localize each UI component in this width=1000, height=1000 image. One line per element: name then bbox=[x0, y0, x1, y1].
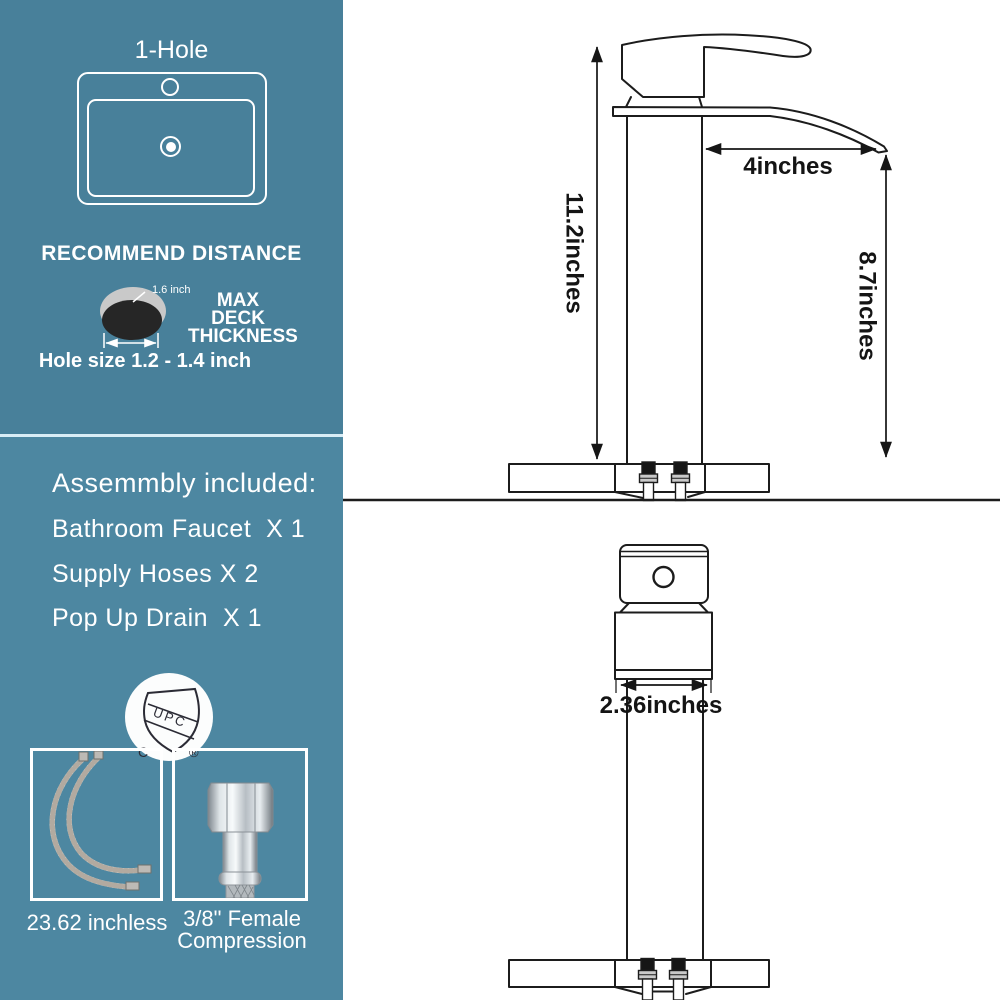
faucet-front-view bbox=[509, 545, 769, 994]
dim-overall-height-label: 11.2inches bbox=[561, 192, 588, 313]
faucet-spec-sheet: 1-Hole RECOMMEND DISTANCE 1.6 inch MAX D… bbox=[0, 0, 1000, 1000]
waterfall-spout bbox=[770, 108, 887, 153]
supply-connections-top bbox=[640, 462, 690, 501]
dim-spout-reach-label: 4inches bbox=[743, 153, 832, 180]
handle-cap bbox=[620, 545, 708, 603]
dim-spout-height-label: 8.7inches bbox=[854, 251, 881, 360]
handle-button bbox=[654, 567, 674, 587]
faucet-technical-drawing: 11.2inches 8.7inches 4inches 2.36inches bbox=[0, 0, 1000, 1000]
handle-lever bbox=[622, 35, 811, 97]
faucet-column-front bbox=[627, 679, 703, 960]
supply-connections-bottom bbox=[639, 959, 688, 1000]
faucet-column bbox=[627, 116, 702, 464]
dim-body-width-label: 2.36inches bbox=[600, 692, 723, 719]
dimension-lines bbox=[597, 47, 886, 693]
